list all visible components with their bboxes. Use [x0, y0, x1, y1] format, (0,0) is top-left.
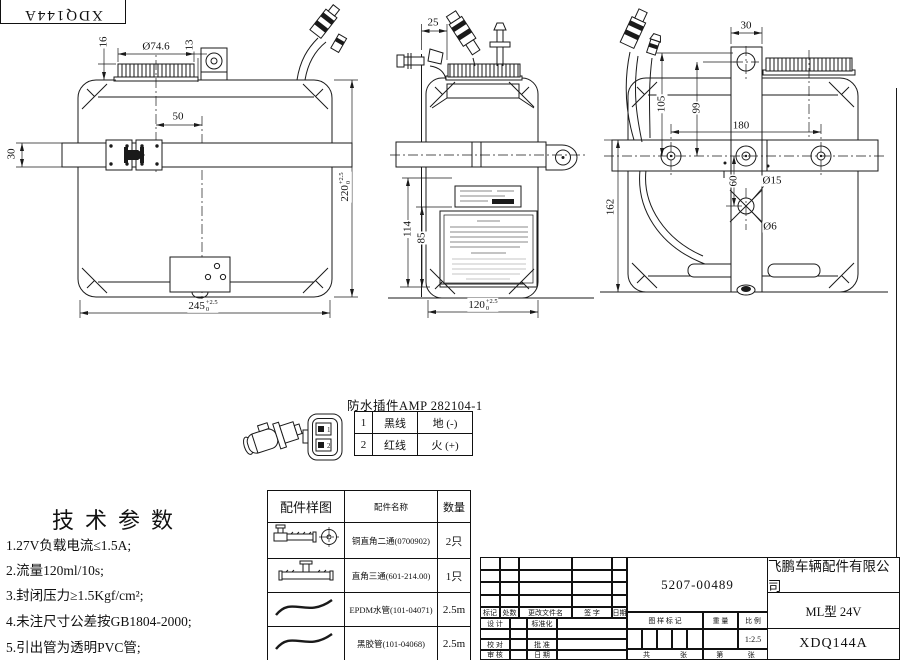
parts-header-qty: 数量	[438, 491, 471, 523]
label-change-doc: 更改文件名	[519, 607, 572, 618]
dim-rear-60: 60	[729, 175, 740, 188]
side-bracket-plate	[397, 49, 446, 297]
label-sheet: 张	[748, 650, 755, 660]
table-row: 黑胶管(101-04068) 2.5m	[268, 627, 471, 660]
label-qty: 处数	[500, 607, 519, 618]
corner-code-text: XDQ144A	[23, 5, 103, 23]
label-design: 设 计	[480, 618, 510, 629]
table-row: 铜直角二通(0700902) 2只	[268, 523, 471, 559]
strap-side	[396, 142, 577, 170]
pin-2-number: 2	[327, 442, 331, 450]
parts-header-sample: 配件样图	[268, 491, 345, 523]
top-bracket	[201, 48, 227, 80]
elbow-fitting-drawing	[270, 523, 342, 553]
dim-rear-hole-small: Ø6	[762, 222, 777, 233]
dim-front-cap-diameter: Ø74.6	[141, 42, 170, 53]
table-row: 直角三通(601-214.00) 1只	[268, 559, 471, 593]
parts-table: 配件样图 配件名称 数量 铜直角二通(0700902) 2只	[267, 490, 471, 660]
hose-drawing	[270, 593, 342, 621]
revision-header-row: 标记 处数 更改文件名 签 字 日期	[480, 607, 627, 618]
label-approve: 批 准	[527, 639, 557, 650]
part-code: XDQ144A	[767, 628, 900, 660]
label-mark: 标记	[480, 607, 500, 618]
pin-1-number: 1	[327, 426, 331, 434]
wire-harness-front	[297, 3, 347, 80]
pin-row: 1 黑线 地 (-)	[355, 412, 473, 434]
tech-param-3: 3.封闭压力≥1.5Kgf/cm²;	[6, 584, 143, 604]
pin-wire: 红线	[373, 434, 418, 456]
label-standardization: 标准化	[527, 618, 557, 629]
label-scale: 比 例	[738, 612, 768, 629]
dim-front-strap-height: 30	[7, 148, 18, 161]
signer-rows: 设 计 标准化 校 对 批 准 审 核 日 期	[480, 618, 627, 660]
dim-front-13: 13	[185, 39, 196, 52]
pin-row: 2 红线 火 (+)	[355, 434, 473, 456]
sheet-count-row: 共张 第张	[627, 649, 768, 660]
part-name: EPDM水管(101-04071)	[345, 593, 438, 627]
tech-params-title: 技术参数	[52, 503, 184, 535]
tech-param-4: 4.未注尺寸公差按GB1804-2000;	[6, 610, 192, 630]
part-qty: 2只	[438, 523, 471, 559]
product-label-large	[440, 211, 537, 287]
revision-grid	[480, 557, 627, 607]
mark-weight-scale-values: 1:2.5	[627, 629, 768, 649]
label-signature: 签 字	[572, 607, 612, 618]
dim-rear-105: 105	[657, 95, 668, 114]
parts-header-name: 配件名称	[345, 491, 438, 523]
dim-side-depth: 120+2.50	[467, 298, 498, 312]
dim-side-25: 25	[427, 18, 440, 29]
mark-weight-scale-header: 图 样 标 记 重 量 比 例	[627, 612, 768, 629]
label-no: 第	[716, 650, 723, 660]
pin-polarity: 地 (-)	[418, 412, 473, 434]
dim-rear-hole-big: Ø15	[762, 176, 783, 187]
product-label-small	[455, 186, 521, 207]
label-drawing-mark: 图 样 标 记	[627, 612, 703, 629]
corner-code-box: XDQ144A	[0, 0, 126, 24]
part-name: 直角三通(601-214.00)	[345, 559, 438, 593]
pump-connector-nozzle	[445, 10, 483, 66]
dim-rear-99: 99	[692, 102, 703, 115]
part-name: 黑胶管(101-04068)	[345, 627, 438, 660]
dim-front-cap-height: 16	[99, 36, 110, 49]
label-weight: 重 量	[703, 612, 738, 629]
scale-value: 1:2.5	[738, 629, 768, 649]
company-name: 飞鹏车辆配件有限公司	[767, 557, 900, 593]
wire-harness-rear	[620, 8, 662, 142]
filler-cap-side	[446, 64, 522, 80]
side-view	[388, 10, 594, 318]
dim-front-50: 50	[172, 112, 185, 123]
tee-fitting-drawing	[270, 559, 342, 587]
dim-rear-162: 162	[606, 198, 617, 217]
engineering-drawing-sheet: 1 2 XDQ144A Ø74.6 16 13 50 30 245+2.50 2…	[0, 0, 900, 660]
bottom-bracket	[170, 257, 230, 298]
label-date2: 日 期	[527, 650, 557, 660]
connector-pin-table: 1 黑线 地 (-) 2 红线 火 (+)	[354, 411, 473, 456]
outlet-nozzle	[490, 23, 510, 66]
connector-drawing: 1 2	[239, 414, 342, 460]
part-qty: 2.5m	[438, 593, 471, 627]
label-date: 日期	[612, 607, 627, 618]
tech-param-1: 1.27V负载电流≤1.5A;	[6, 534, 131, 554]
label-total: 共	[643, 650, 650, 660]
dim-side-114: 114	[403, 220, 414, 238]
dim-side-85: 85	[417, 232, 428, 245]
label-check: 校 对	[480, 639, 510, 650]
hose-drawing	[270, 627, 342, 655]
drawing-number: 5207-00489	[627, 557, 768, 612]
label-sheets: 张	[680, 650, 687, 660]
tech-param-5: 5.引出管为透明PVC管;	[6, 636, 141, 656]
part-name: 铜直角二通(0700902)	[345, 523, 438, 559]
model-name: ML型 24V	[767, 592, 900, 629]
internal-hose	[640, 170, 730, 270]
part-qty: 1只	[438, 559, 471, 593]
part-qty: 2.5m	[438, 627, 471, 660]
label-audit: 审 核	[480, 650, 510, 660]
pin-wire: 黑线	[373, 412, 418, 434]
rear-view	[600, 8, 888, 295]
dim-front-height: 220+2.50	[338, 171, 352, 202]
dim-rear-30: 30	[740, 21, 753, 32]
tech-param-2: 2.流量120ml/10s;	[6, 559, 104, 579]
table-row: EPDM水管(101-04071) 2.5m	[268, 593, 471, 627]
mounting-strap	[62, 140, 352, 170]
dim-rear-180: 180	[732, 121, 751, 132]
pin-no: 1	[355, 412, 373, 434]
dim-front-width: 245+2.50	[187, 299, 218, 313]
pin-polarity: 火 (+)	[418, 434, 473, 456]
pin-no: 2	[355, 434, 373, 456]
